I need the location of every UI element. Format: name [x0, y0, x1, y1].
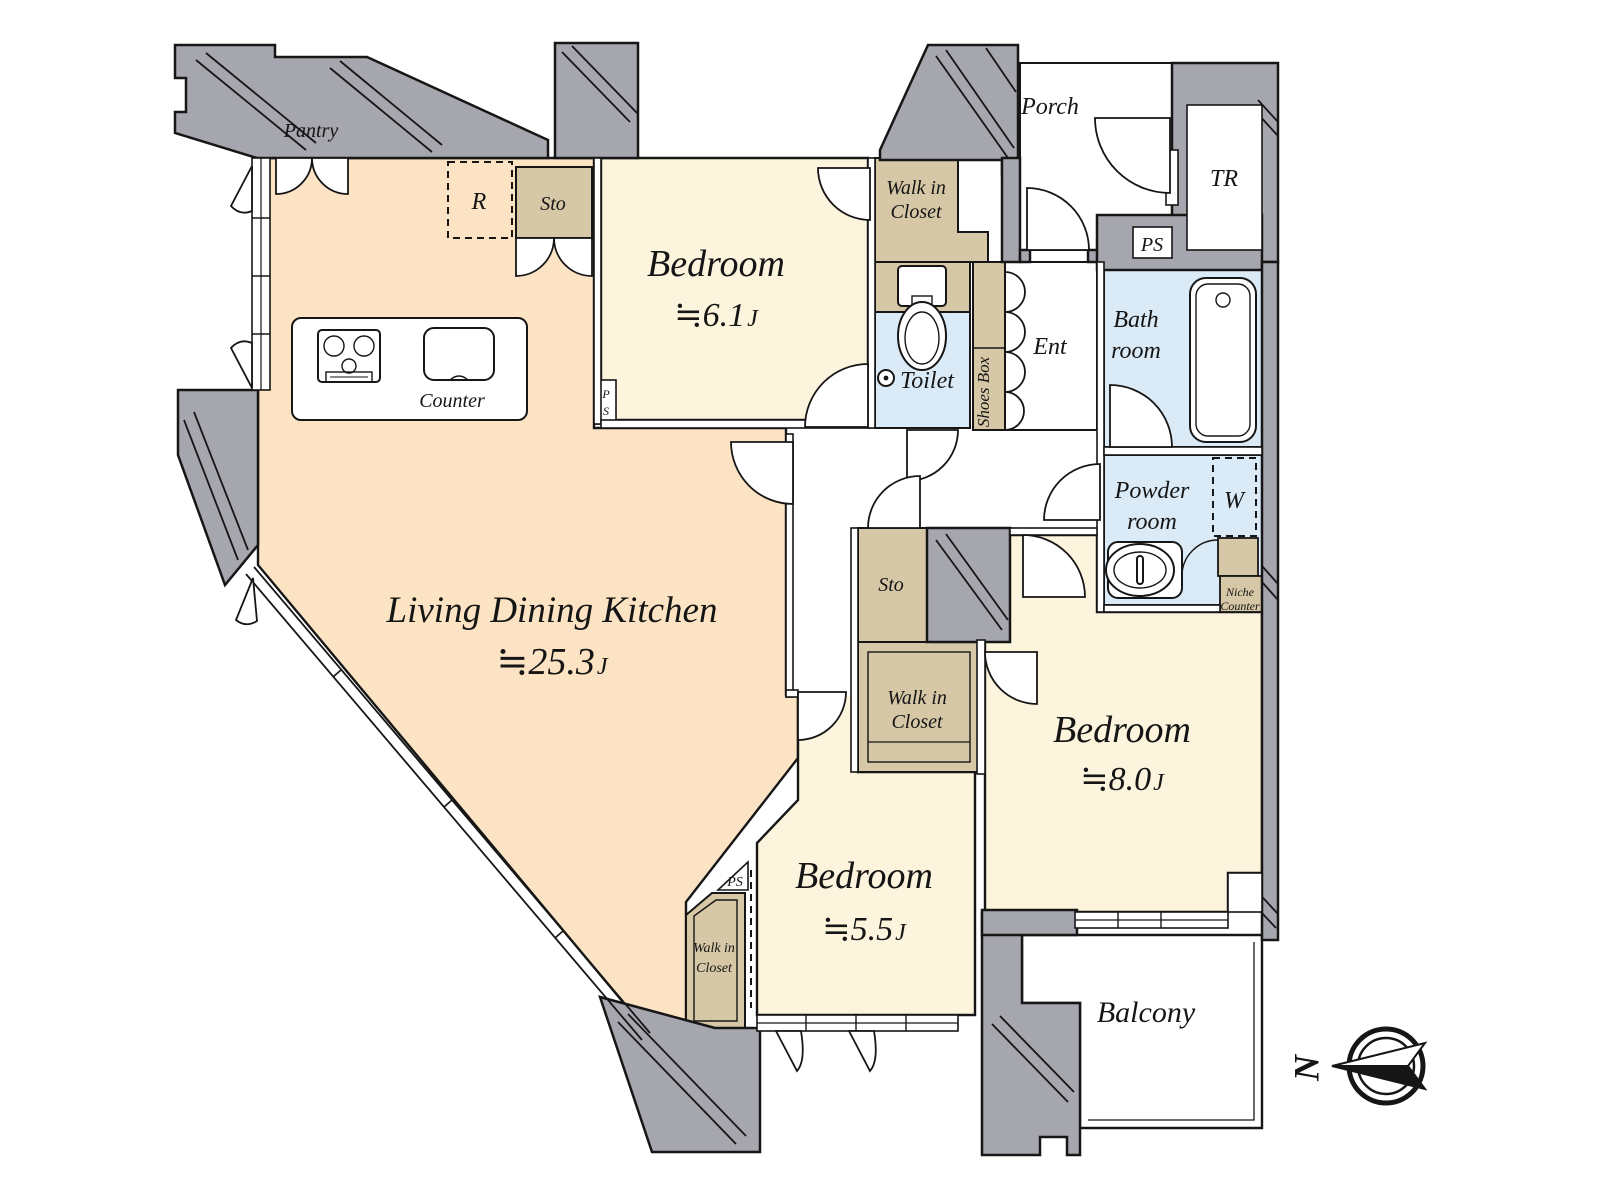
iw-wic-bedroom-right	[977, 640, 985, 774]
bedroom-right-corner-notch	[1228, 873, 1262, 912]
label-wic-top-2: Closet	[890, 201, 942, 223]
label-wic-top-1: Walk in	[886, 177, 946, 199]
wall-right-outer	[1262, 262, 1278, 940]
iw-corridor-sto	[851, 528, 858, 772]
washbasin-icon	[1106, 542, 1182, 598]
casement-left-top	[231, 166, 252, 213]
iw-bath-powder	[1104, 447, 1262, 455]
iw-bedroom-right-top	[1010, 528, 1097, 535]
iw-bath-left	[1097, 262, 1104, 612]
iw-ldk-bedroom	[594, 158, 601, 424]
label-wic-mid-1: Walk in	[887, 687, 947, 709]
north-arrow-lower	[1332, 1066, 1425, 1089]
label-powder-2: room	[1127, 509, 1177, 535]
label-sto-kitchen: Sto	[540, 193, 566, 215]
floor-plan: Living Dining Kitchen ≒25.3J Bedroom ≒6.…	[0, 0, 1600, 1200]
label-ps-left-p: P	[601, 387, 610, 401]
label-bath-2: room	[1111, 338, 1161, 364]
label-bath-1: Bath	[1113, 307, 1158, 333]
bathtub-icon	[1190, 278, 1256, 442]
compass: N	[1286, 1029, 1425, 1103]
label-washer: W	[1224, 488, 1246, 514]
casement-bottom-1	[776, 1031, 803, 1071]
label-powder-1: Powder	[1114, 478, 1190, 504]
label-wic-bottom-1: Walk in	[693, 941, 735, 956]
label-bedroom-bottom: Bedroom	[795, 855, 933, 897]
casement-bottom-2	[849, 1031, 876, 1071]
label-ldk: Living Dining Kitchen	[386, 590, 718, 631]
wall-left-mid	[178, 390, 258, 585]
label-bedroom-top: Bedroom	[647, 243, 785, 285]
wall-balcony-top	[982, 910, 1077, 935]
north-arrow-upper	[1332, 1043, 1425, 1066]
stove-icon	[318, 330, 380, 382]
iw-corridor-end	[786, 690, 798, 697]
powder-cabinet	[1218, 538, 1258, 576]
wall-top-left	[175, 45, 548, 158]
label-shoes-box: Shoes Box	[974, 356, 993, 427]
label-wic-mid-2: Closet	[891, 711, 943, 733]
label-ps-top: PS	[1140, 234, 1163, 256]
label-trunk-room: TR	[1210, 166, 1238, 192]
iw-powder-bottom	[1104, 605, 1220, 612]
label-pantry: Pantry	[283, 120, 339, 142]
label-north: N	[1286, 1053, 1326, 1082]
label-wic-bottom-2: Closet	[696, 961, 733, 976]
label-niche-1: Niche	[1225, 585, 1255, 599]
label-ps-left-s: S	[603, 404, 609, 418]
label-niche-2: Counter	[1220, 599, 1260, 613]
casement-diagonal	[236, 578, 257, 624]
label-bedroom-right: Bedroom	[1053, 709, 1191, 751]
label-sto-hall: Sto	[878, 574, 904, 596]
label-ldk-size: ≒25.3J	[497, 641, 609, 683]
label-balcony: Balcony	[1097, 996, 1196, 1029]
wall-porch-left	[1002, 158, 1020, 262]
label-ps-mid: PS	[726, 875, 743, 890]
label-counter: Counter	[419, 390, 485, 412]
casement-left-bottom	[231, 341, 252, 388]
wall-ent-stub-left	[1020, 250, 1030, 262]
label-entrance: Ent	[1032, 334, 1068, 360]
floor-plan-page: Living Dining Kitchen ≒25.3J Bedroom ≒6.…	[0, 0, 1600, 1200]
kitchen-sink-icon	[424, 328, 494, 380]
label-refrigerator: R	[471, 189, 487, 215]
label-porch: Porch	[1020, 94, 1079, 120]
label-toilet: Toilet	[900, 368, 955, 394]
